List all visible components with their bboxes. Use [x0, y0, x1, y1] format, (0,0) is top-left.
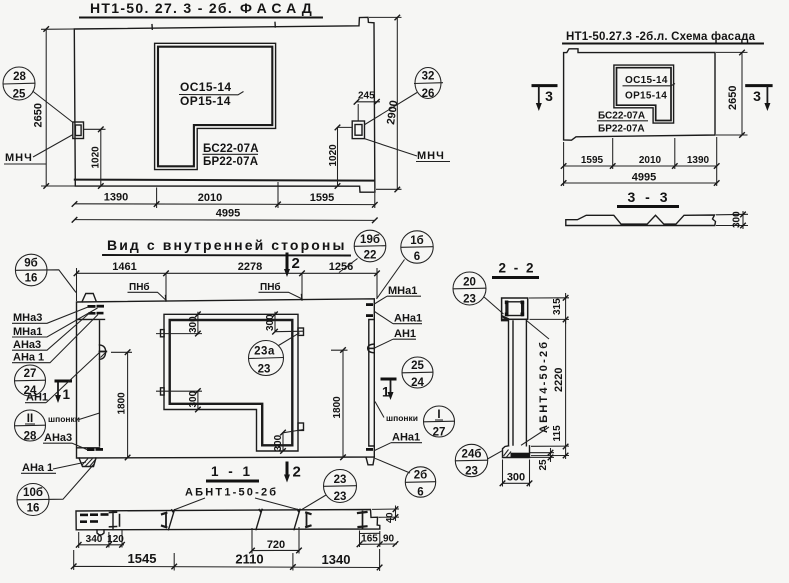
svg-text:2010: 2010: [639, 155, 662, 166]
svg-text:МНЧ: МНЧ: [417, 150, 445, 162]
svg-text:1461: 1461: [112, 261, 136, 273]
svg-text:1800: 1800: [117, 392, 128, 415]
svg-text:115: 115: [552, 425, 563, 442]
svg-text:23: 23: [465, 466, 478, 478]
svg-text:1: 1: [63, 387, 71, 402]
svg-text:2: 2: [292, 255, 300, 272]
svg-text:3: 3: [753, 88, 761, 104]
svg-text:23: 23: [258, 364, 271, 376]
svg-text:ОР15-14: ОР15-14: [625, 91, 667, 102]
svg-text:АНа1: АНа1: [394, 313, 422, 325]
svg-text:АН1: АН1: [394, 328, 416, 340]
svg-text:300: 300: [507, 472, 525, 484]
svg-text:1020: 1020: [91, 146, 102, 169]
svg-text:ОС15-14: ОС15-14: [625, 75, 668, 86]
svg-text:40: 40: [385, 512, 396, 523]
svg-text:МНа3: МНа3: [13, 312, 42, 324]
svg-text:2: 2: [293, 464, 301, 481]
svg-text:2650: 2650: [33, 103, 45, 127]
svg-text:24б: 24б: [462, 449, 482, 461]
svg-text:Вид с внутренней стороны: Вид с внутренней стороны: [107, 237, 347, 253]
svg-text:6: 6: [414, 251, 420, 263]
svg-text:БС22-07А: БС22-07А: [598, 111, 645, 122]
svg-text:90: 90: [383, 534, 395, 545]
svg-text:22: 22: [364, 250, 377, 262]
svg-text:300: 300: [273, 434, 284, 451]
svg-text:ОС15-14: ОС15-14: [180, 80, 232, 94]
svg-text:шпонки: шпонки: [386, 413, 418, 423]
svg-text:10б: 10б: [23, 487, 43, 499]
svg-text:БС22-07А: БС22-07А: [203, 143, 259, 155]
svg-text:300: 300: [265, 314, 276, 331]
svg-text:32: 32: [422, 71, 435, 83]
svg-text:2б: 2б: [414, 470, 428, 482]
svg-text:1390: 1390: [104, 192, 128, 204]
svg-text:ПНб: ПНб: [129, 281, 150, 293]
svg-text:26: 26: [422, 88, 435, 100]
svg-text:1545: 1545: [128, 551, 157, 566]
svg-text:НТ1-50.27.3 -2б.л. Схема фасад: НТ1-50.27.3 -2б.л. Схема фасада: [566, 31, 756, 43]
svg-text:2278: 2278: [238, 261, 262, 273]
svg-text:23: 23: [334, 474, 347, 486]
svg-text:II: II: [27, 413, 33, 425]
svg-text:1390: 1390: [687, 155, 710, 166]
svg-text:АБНТ4-50-2б: АБНТ4-50-2б: [538, 340, 550, 433]
svg-text:16: 16: [25, 273, 38, 285]
svg-text:шпонки: шпонки: [48, 414, 80, 424]
svg-text:23а: 23а: [254, 346, 275, 358]
svg-text:АНа3: АНа3: [13, 339, 41, 351]
svg-text:АНа 1: АНа 1: [22, 462, 53, 474]
svg-text:300: 300: [732, 211, 743, 228]
svg-text:2220: 2220: [553, 368, 565, 392]
svg-text:4995: 4995: [632, 172, 656, 184]
svg-text:3: 3: [545, 88, 553, 104]
svg-text:27: 27: [24, 368, 37, 380]
svg-text:1800: 1800: [332, 396, 343, 419]
svg-text:1: 1: [382, 385, 390, 400]
svg-text:АНа 1: АНа 1: [13, 352, 44, 364]
svg-text:2010: 2010: [198, 192, 222, 204]
svg-text:4995: 4995: [216, 208, 240, 220]
svg-text:245: 245: [358, 91, 375, 102]
svg-text:28: 28: [24, 431, 37, 443]
svg-text:АБНТ1-50-2б: АБНТ1-50-2б: [185, 487, 278, 499]
svg-text:2650: 2650: [727, 86, 739, 110]
svg-text:1595: 1595: [581, 155, 604, 166]
svg-text:АНа1: АНа1: [392, 432, 420, 444]
svg-text:ПНб: ПНб: [260, 281, 281, 293]
svg-text:23: 23: [463, 294, 476, 306]
svg-text:1 - 1: 1 - 1: [211, 464, 253, 479]
svg-text:МНа1: МНа1: [13, 326, 42, 338]
svg-text:БР22-07А: БР22-07А: [203, 156, 258, 168]
svg-text:720: 720: [267, 539, 285, 551]
svg-text:300: 300: [188, 390, 199, 407]
svg-text:I: I: [437, 409, 440, 421]
svg-text:120: 120: [107, 534, 124, 545]
svg-text:1340: 1340: [322, 552, 351, 567]
svg-text:МНЧ: МНЧ: [5, 152, 33, 164]
svg-text:НТ1-50. 27. 3 - 2б.: НТ1-50. 27. 3 - 2б.: [90, 0, 233, 16]
svg-text:ФАСАД: ФАСАД: [240, 0, 317, 16]
svg-text:165: 165: [361, 534, 378, 545]
svg-text:25: 25: [411, 360, 424, 372]
svg-text:315: 315: [552, 298, 563, 315]
svg-text:ОР15-14: ОР15-14: [180, 94, 231, 108]
svg-text:9б: 9б: [24, 258, 38, 270]
svg-text:БР22-07А: БР22-07А: [598, 124, 645, 135]
svg-text:16: 16: [27, 503, 40, 515]
svg-text:28: 28: [13, 71, 26, 83]
svg-text:МНа1: МНа1: [388, 285, 417, 297]
svg-text:24: 24: [411, 377, 424, 389]
svg-text:23: 23: [334, 491, 347, 503]
svg-text:2110: 2110: [235, 552, 263, 567]
svg-text:25: 25: [538, 459, 549, 471]
svg-text:27: 27: [433, 427, 446, 439]
svg-text:6: 6: [417, 487, 423, 499]
svg-text:25: 25: [13, 89, 26, 101]
svg-text:1б: 1б: [410, 235, 424, 247]
svg-text:1595: 1595: [310, 192, 334, 204]
svg-text:300: 300: [188, 316, 199, 333]
svg-text:2 - 2: 2 - 2: [498, 261, 535, 276]
svg-text:1020: 1020: [328, 144, 339, 167]
svg-text:АНа3: АНа3: [44, 432, 72, 444]
svg-text:АН1: АН1: [26, 392, 48, 404]
svg-text:340: 340: [86, 534, 103, 545]
svg-text:20: 20: [463, 277, 476, 289]
svg-text:19б: 19б: [360, 234, 380, 246]
svg-text:3 - 3: 3 - 3: [627, 189, 670, 205]
